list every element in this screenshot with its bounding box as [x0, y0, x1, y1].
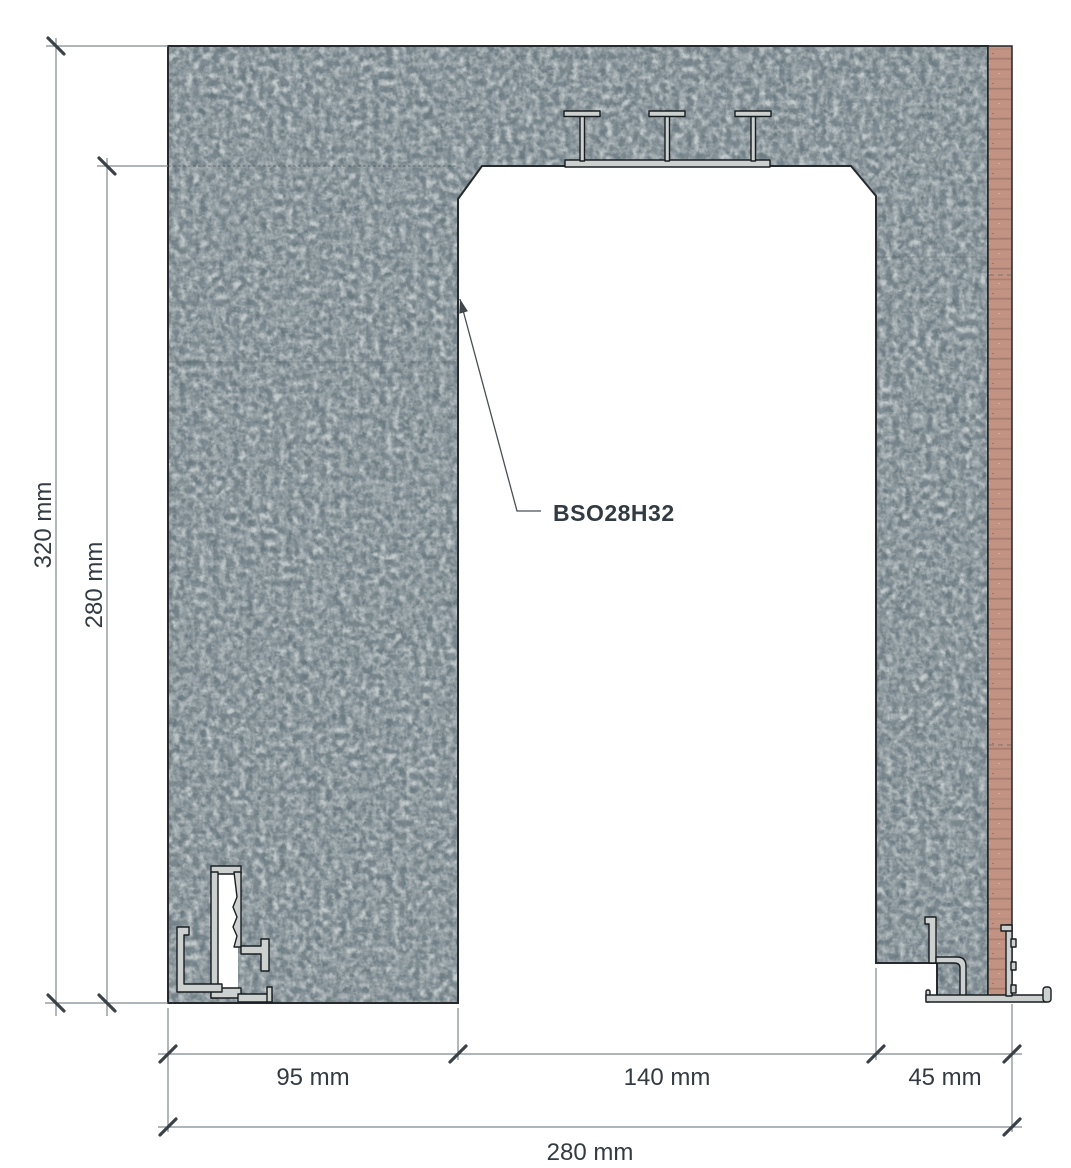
pocket-frame-cross-section: 320 mm 280 mm 95 mm 140 mm 45 mm 280 mm … — [0, 0, 1071, 1168]
leader-callout — [459, 299, 541, 511]
track-flange — [564, 111, 600, 117]
technical-drawing-page: 320 mm 280 mm 95 mm 140 mm 45 mm 280 mm … — [0, 0, 1071, 1168]
track-flange — [649, 111, 685, 117]
dim-opening-width-label: 140 mm — [624, 1064, 711, 1091]
leader-line — [460, 299, 541, 511]
track-web — [751, 116, 756, 161]
dim-left-wall-width-label: 95 mm — [276, 1064, 349, 1091]
track-web — [665, 116, 670, 161]
dim-overall-height-label: 320 mm — [30, 482, 57, 569]
track-flange — [735, 111, 771, 117]
dim-right-wall-width-label: 45 mm — [908, 1064, 981, 1091]
dim-opening-height-label: 280 mm — [81, 542, 108, 629]
product-code-label: BSO28H32 — [553, 500, 675, 526]
wood-batten — [988, 46, 1012, 997]
dim-overall-width-label: 280 mm — [547, 1139, 634, 1166]
leader-arrowhead — [459, 299, 468, 314]
track-web — [580, 116, 585, 161]
